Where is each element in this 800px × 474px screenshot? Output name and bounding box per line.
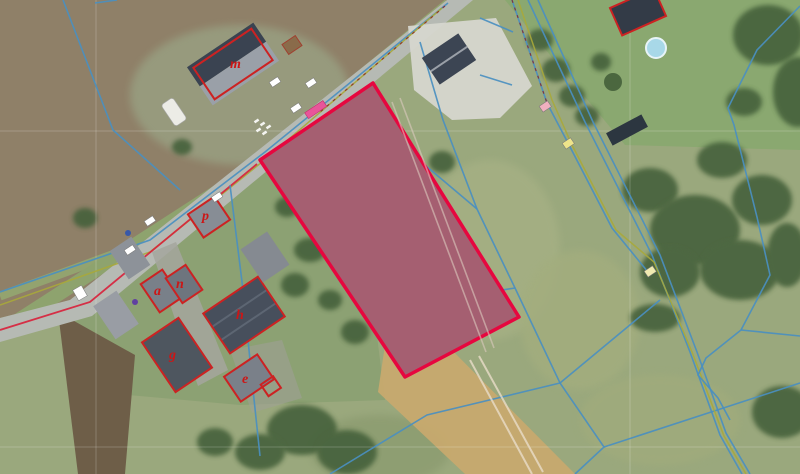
map-canvas[interactable]: m p a n h g e <box>0 0 800 474</box>
building-label-h: h <box>236 308 244 323</box>
pond <box>604 73 622 91</box>
building-label-g: g <box>168 348 176 363</box>
building-label-n: n <box>176 277 184 292</box>
point-blue <box>125 230 131 236</box>
building-label-a: a <box>154 284 161 299</box>
aerial-map: m p a n h g e <box>0 0 800 474</box>
building-label-m: m <box>230 57 241 72</box>
pool <box>646 38 666 58</box>
point-purple <box>132 299 138 305</box>
building-label-p: p <box>201 209 209 224</box>
building-label-e: e <box>242 372 248 387</box>
